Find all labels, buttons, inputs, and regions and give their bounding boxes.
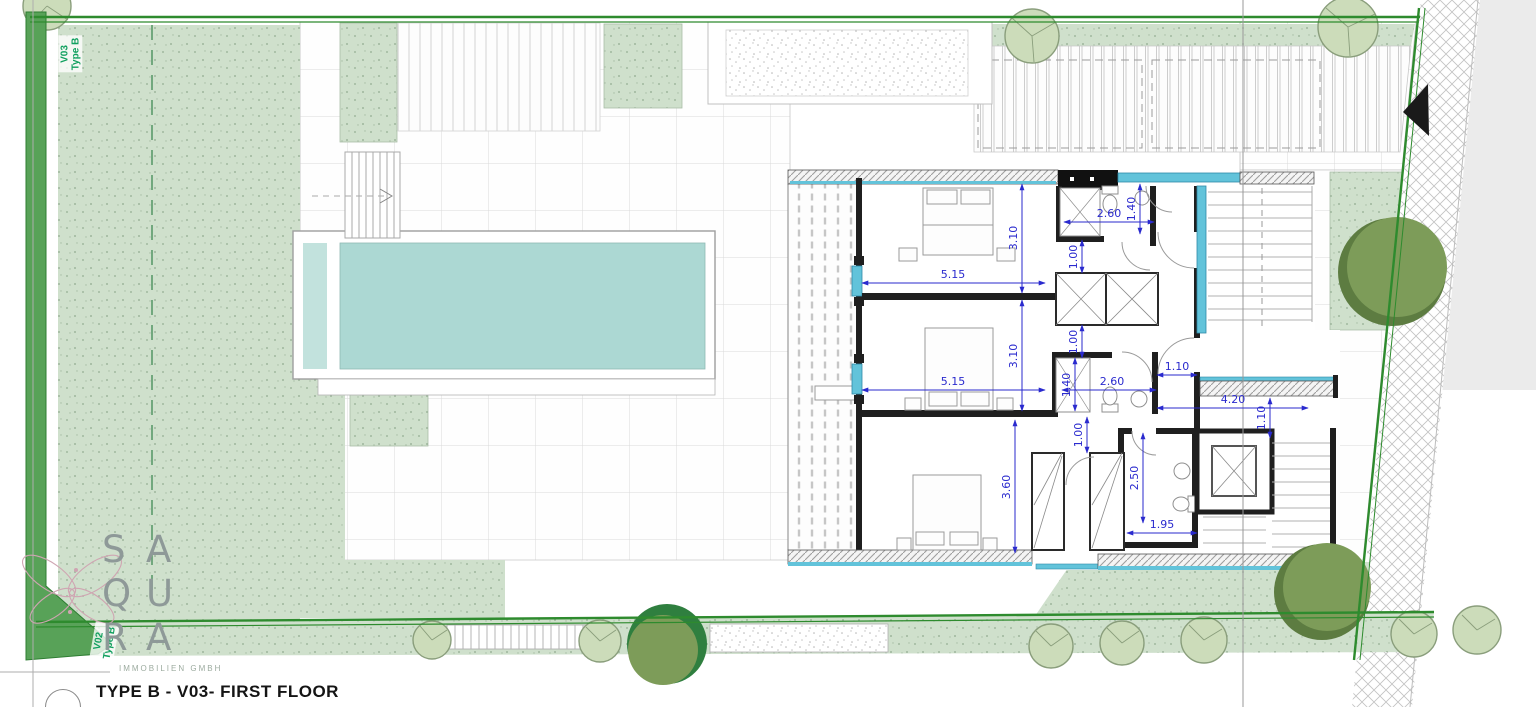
dimension-label: 2.60 [1097,207,1122,220]
plot-label-v03-line2: Type B [70,38,81,71]
logo-letter: A [146,616,190,660]
bottom-gravel-strip [710,624,888,652]
dimension-label: 3.10 [1007,226,1020,251]
logo-letter: A [146,528,190,572]
logo-letter: R [102,616,146,660]
dimension-label: 1.00 [1067,330,1080,355]
dimension-label: 3.10 [1007,344,1020,369]
elevator-shaft [1197,431,1272,512]
floor-plan-page: 5.153.102.601.401.001.005.153.101.402.60… [0,0,1536,707]
plot-label-v03: V03 Type B [58,36,82,73]
gravel-bed [708,22,992,104]
dimension-label: 1.00 [1067,245,1080,270]
dimension-label: 2.50 [1128,466,1141,491]
logo-letter: Q [102,572,146,616]
site-plan-drawing: 5.153.102.601.401.001.005.153.101.402.60… [0,0,1536,707]
dimension-label: 1.10 [1165,360,1190,373]
logo-letters: S A Q U R A [102,528,194,660]
dimension-label: 1.40 [1125,197,1138,222]
dimension-label: 1.00 [1072,423,1085,448]
dimension-label: 1.10 [1255,406,1268,431]
building [788,170,1340,570]
pergola-northwest [398,23,600,131]
logo-letter: U [146,572,190,616]
dimension-label: 3.60 [1000,475,1013,500]
dimension-label: 2.60 [1100,375,1125,388]
dimension-label: 4.20 [1221,393,1246,406]
dimension-label: 5.15 [941,375,966,388]
wardrobe-closet [1056,273,1158,325]
west-balcony [788,184,857,550]
dimension-label: 1.40 [1060,373,1073,398]
dimension-label: 1.95 [1150,518,1175,531]
plot-label-v03-line1: V03 [59,45,70,63]
page-title: TYPE B - V03- FIRST FLOOR [96,682,339,702]
company-name: IMMOBILIEN GMBH [119,664,222,673]
pool [293,231,715,395]
dimension-label: 5.15 [941,268,966,281]
logo-letter: S [102,528,146,572]
